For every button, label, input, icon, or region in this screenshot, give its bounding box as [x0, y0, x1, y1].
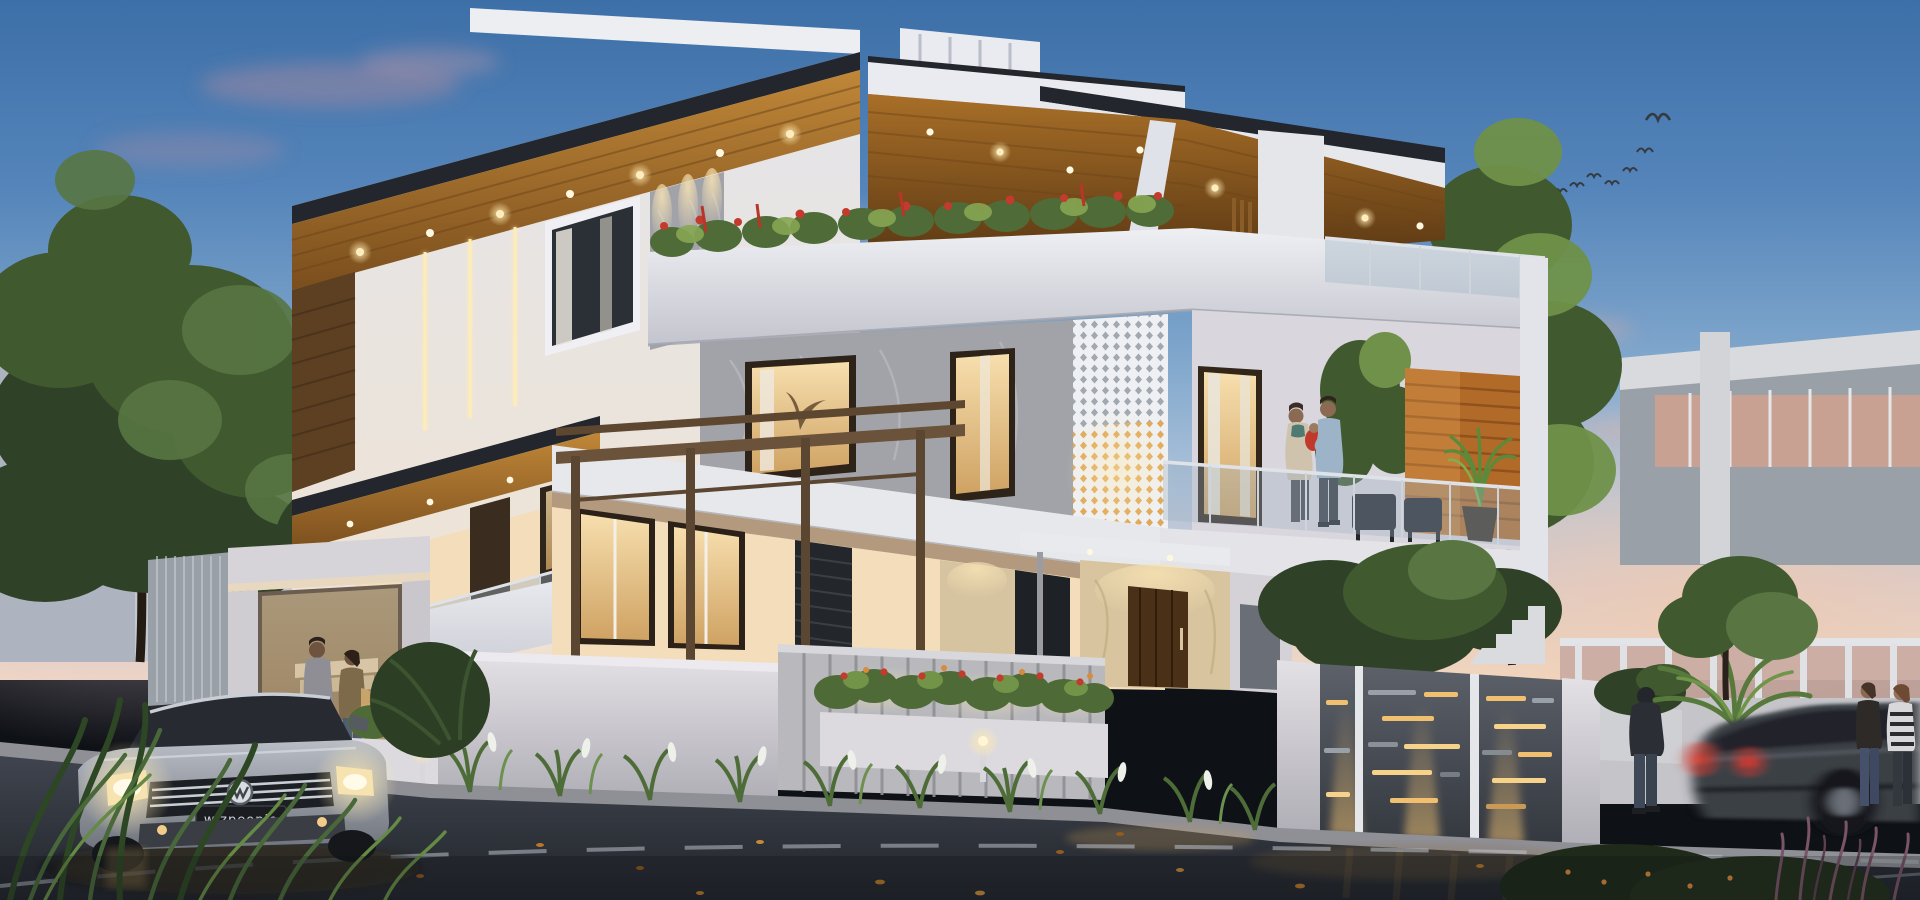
entry-door — [1128, 586, 1188, 688]
ground-window-1 — [575, 508, 655, 646]
ground-window-2 — [668, 521, 745, 650]
rendering-canvas: wizpeople — [0, 0, 1920, 900]
terrace-level — [1163, 310, 1545, 552]
canopy-white-pillar — [1258, 130, 1324, 250]
upper-left-window — [545, 196, 640, 356]
bottom-vignette — [0, 856, 1920, 900]
main-gate — [1277, 660, 1600, 852]
villa-dusk-rendering: wizpeople — [0, 0, 1920, 900]
gate-pillar-right — [1562, 678, 1600, 852]
gate-pillar-left — [1277, 660, 1320, 840]
jali-screen — [1065, 314, 1175, 545]
neighbor-building-right — [1620, 330, 1920, 565]
house-right-edge-column — [1520, 256, 1548, 600]
shrub-behind-car — [370, 642, 490, 758]
wood-cladding-column — [292, 272, 355, 492]
